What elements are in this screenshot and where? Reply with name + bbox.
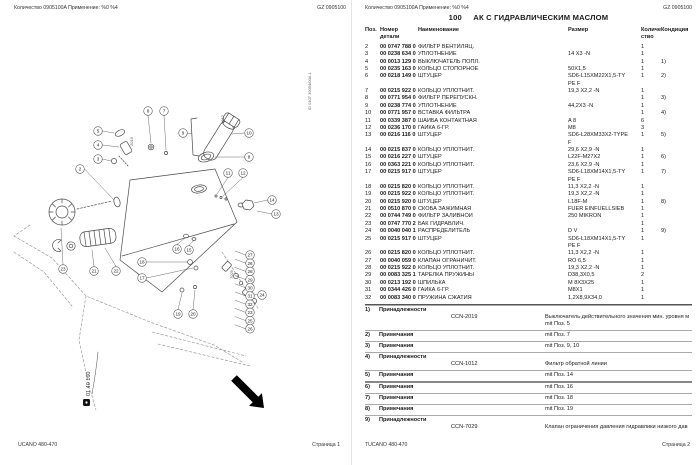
cell-size [568,110,641,117]
table-row: 1200 0236 170 0ГАЙКА 6-ГР.M83 [365,125,692,132]
cell-cond [661,88,692,95]
cell-part: 00 0339 387 0 [380,118,418,125]
callout-number: 29 [247,277,253,282]
callout-number: 15 [186,248,192,253]
cell-size: 11,3 X2,2 -N [568,250,641,257]
cell-name: КОЛЬЦО УПЛОТНИТ. [418,250,568,257]
footnote-dsc: Клапан ограничения давления гидравлики н… [545,424,691,431]
right-header-quantity: Количество 0905100A Применение: %0 %4 [365,5,469,11]
cell-part: 00 0215 837 0 [380,147,418,154]
cell-pos: 32 [365,295,380,302]
table-row: 400 0013 129 0ВЫКЛЮЧАТЕЛЬ ПОПЛ.11) [365,59,692,66]
cell-cond [661,265,692,272]
cell-size: L18F-M [568,199,641,206]
cell-part: 00 0747 788 0 [380,44,418,51]
callout-number: 2 [79,167,82,172]
cell-qty: 1 [641,169,661,184]
cell-cond [661,272,692,279]
callout-number: 23 [60,267,66,272]
footnote-ccn: CCN-1012 [451,361,477,368]
footnote-lab: Примечания [379,372,413,379]
callout-number: 10 [246,131,252,136]
table-row: 200 0747 788 0ФИЛЬТР ВЕНТИЛЯЦ.1 [365,44,692,51]
cell-name: КЛАПАН ОГРАНИЧИТ. [418,258,568,265]
cell-cond: 5) [661,132,692,147]
callout-number: 8 [248,155,251,160]
cell-pos: 3 [365,51,380,58]
cell-part: 00 0747 770 2 [380,221,418,228]
strip-leader-line [235,325,246,329]
cell-pos: 26 [365,250,380,257]
callout-number: 24 [259,293,265,298]
cell-part: 00 0236 170 0 [380,125,418,132]
cell-cond [661,147,692,154]
cell-part: 00 0215 922 0 [380,191,418,198]
footnote-dsc: mit Поз. 16 [545,384,691,391]
cell-qty: 1 [641,206,661,213]
cell-size: SD6-L28XM33X2-TYPE F [568,132,641,147]
footnote-num: 5) [365,372,370,379]
cell-pos: 23 [365,221,380,228]
callout-number: 21 [91,269,97,274]
table-row: 600 0218 149 0ШТУЦЕРSD6-L15XM22X1,5-TY P… [365,73,692,88]
group-ref-label: 01 40 160 [83,352,98,406]
table-row: 2900 0083 325 1ТАРЕЛКА ПРУЖИНЫD38,3X0,52 [365,272,692,279]
table-row: 2100 0510 870 0СКОБА ЗАЖИМНАЯFUER EINFUE… [365,206,692,213]
cell-cond: 7) [661,169,692,184]
plug-parts [148,144,167,154]
cell-pos: 16 [365,162,380,169]
cell-pos: 29 [365,272,380,279]
cell-name: УПЛОТНЕНИЕ [418,103,568,110]
cell-size: L22F-M27X2 [568,154,641,161]
cell-qty: 1 [641,110,661,117]
footnote-lab: Принадлежности [379,307,426,314]
cell-size: 1,2X8,9X34,0 [568,295,641,302]
cell-qty: 3 [641,125,661,132]
cell-cond [661,191,692,198]
cell-qty: 1 [641,44,661,51]
exploded-parts-diagram: 01 40 160 ID 0107 39054/00A 1 2543679108… [0,0,350,465]
footnote-num: 9) [365,417,370,424]
cell-cond: 3) [661,95,692,102]
cell-name: КОЛЬЦО УПЛОТНИТ. [418,147,568,154]
cell-part: 00 0083 340 0 [380,295,418,302]
callout-number: 5 [97,129,100,134]
table-row: 2300 0747 770 2БАК ГИДРАВЛИЧ.1 [365,221,692,228]
cell-pos: 6 [365,73,380,88]
cell-size: 11,3 X2,2 -N [568,184,641,191]
cell-pos: 4 [365,59,380,66]
callout-number: 32 [247,302,253,307]
table-row: 800 0771 954 0ФИЛЬТР ПЕРЕПУСКН.13) [365,95,692,102]
cell-part: 00 0215 917 0 [380,169,418,184]
cell-pos: 22 [365,213,380,220]
footnote-lab: Примечания [379,332,413,339]
footnote: 4)ПринадлежностиCCN-1012Фильтр обратной … [365,352,692,370]
cell-name: ШТУЦЕР [418,154,568,161]
footnote-lab: Примечания [379,384,413,391]
footnote-dsc: mit Поз. 9, 10 [545,343,691,350]
cell-cond [661,250,692,257]
cell-name: ФИЛЬТР ВЕНТИЛЯЦ. [418,44,568,51]
cell-name: ШТУЦЕР [418,169,568,184]
cell-name: ВСТАВКА ФИЛЬТРА [418,110,568,117]
cell-qty: 1 [641,73,661,88]
cell-cond [661,280,692,287]
cell-name: ГАЙКА 6-ГР. [418,125,568,132]
table-row: 700 0215 922 0КОЛЬЦО УПЛОТНИТ.19,3 X2,2 … [365,88,692,95]
callout-number: 7 [163,109,166,114]
cell-cond [661,44,692,51]
cell-part: 00 0215 820 0 [380,184,418,191]
cell-part: 00 0013 129 0 [380,59,418,66]
catalog-spread: Количество 0905100A Применение: %0 %4 GZ… [0,0,700,465]
footnote-ccn: CCN-2019 [451,314,477,321]
table-row: 2800 0215 922 0КОЛЬЦО УПЛОТНИТ.19,3 X2,2… [365,265,692,272]
callout-number: 31 [247,294,253,299]
cell-cond: 1) [661,59,692,66]
cell-qty: 1 [641,66,661,73]
parts-table-body: 200 0747 788 0ФИЛЬТР ВЕНТИЛЯЦ.1300 0238 … [365,44,692,302]
cell-part: 00 0363 221 0 [380,162,418,169]
cell-size: 250 MIKRON [568,213,641,220]
footnote-lab: Примечания [379,343,413,350]
table-row: 1300 0216 116 0ШТУЦЕРSD6-L28XM33X2-TYPE … [365,132,692,147]
callout-number: 13 [273,212,279,217]
footnote-num: 8) [365,406,370,413]
footnote-lab: Принадлежности [379,354,426,361]
drawing-id: ID 0107 39054/00A 1 [307,72,312,110]
cell-qty: 1 [641,228,661,235]
cell-size: D38,3X0,5 [568,272,641,279]
cell-cond [661,206,692,213]
table-row: 1600 0363 221 0КОЛЬЦО УПЛОТНИТ.23,6 X2,9… [365,162,692,169]
cell-name: РАСПРЕДЕЛИТЕЛЬ [418,228,568,235]
col-header-qty: Количе ство [641,27,661,44]
cell-pos: 21 [365,206,380,213]
cell-part: 00 0238 634 0 [380,51,418,58]
inline-ref-label: 2019 [129,136,134,146]
cell-name: ШТУЦЕР [418,73,568,88]
cell-part: 00 0771 957 0 [380,110,418,117]
table-row: 2600 0215 820 0КОЛЬЦО УПЛОТНИТ.11,3 X2,2… [365,250,692,257]
cell-part: 00 0216 116 0 [380,132,418,147]
cell-qty: 1 [641,250,661,257]
cell-name: ВЫКЛЮЧАТЕЛЬ ПОПЛ. [418,59,568,66]
footnote-dsc: mit Поз. 19 [545,406,691,413]
cell-name: ФИЛЬТР ПЕРЕПУСКН. [418,95,568,102]
cell-pos: 31 [365,287,380,294]
footnote-num: 7) [365,395,370,402]
section-title: 100 АК С ГИДРАВЛИЧЕСКИМ МАСЛОМ [365,13,692,22]
strip-leader-line [235,300,246,304]
cell-pos: 30 [365,280,380,287]
cell-cond [661,258,692,265]
cell-pos: 7 [365,88,380,95]
cell-cond [661,125,692,132]
cell-size: 23,6 X2,9 -N [568,162,641,169]
cell-part: 00 0215 922 0 [380,88,418,95]
callout-number: 11 [226,171,231,176]
cell-pos: 11 [365,118,380,125]
cell-qty: 1 [641,236,661,251]
cell-size: M8X1 [568,287,641,294]
cell-pos: 14 [365,147,380,154]
callout-number: 22 [113,269,119,274]
callout-number: 27 [247,253,253,258]
callout-number: 12 [240,171,246,176]
cell-part: 00 0215 922 0 [380,265,418,272]
page-seam [351,0,352,465]
cell-pos: 12 [365,125,380,132]
cell-qty: 1 [641,59,661,66]
cell-qty: 1 [641,265,661,272]
cell-qty: 1 [641,162,661,169]
right-footer-page: Страница 2 [662,442,690,448]
cell-pos: 24 [365,228,380,235]
breather-filter-cylinder [197,112,241,164]
table-row: 2700 0040 059 0КЛАПАН ОГРАНИЧИТ.RO 6,51 [365,258,692,265]
table-row: 1800 0215 820 0КОЛЬЦО УПЛОТНИТ.11,3 X2,2… [365,184,692,191]
cell-cond [661,221,692,228]
parts-table-wrap: Поз. Номер детали Наименование Размер Ко… [365,27,692,433]
cell-part: 00 0215 920 0 [380,199,418,206]
cell-cond [661,184,692,191]
cell-size: SD6-L18XM14X1,5-TY PE F [568,236,641,251]
table-row: 1000 0771 957 0ВСТАВКА ФИЛЬТРА14) [365,110,692,117]
strip-leader-line [235,251,246,255]
footnote-dsc: Выключатель действительного значения мин… [545,314,691,321]
cell-pos: 25 [365,236,380,251]
cell-name: ШАЙБА КОНТАКТНАЯ [418,118,568,125]
section-number: 100 [449,13,462,22]
footnote-num: 2) [365,332,370,339]
footnote-num: 1) [365,307,370,314]
cell-part: 00 0344 426 0 [380,287,418,294]
footnote: 9)ПринадлежностиCCN-7029Клапан ограничен… [365,415,692,433]
inline-ref-label: 1012 [220,114,225,124]
table-row: 3000 0213 192 0ШПИЛЬКАM 8X3X251 [365,280,692,287]
cell-pos: 8 [365,95,380,102]
cell-qty: 1 [641,88,661,95]
vent-cap-knob [49,199,112,225]
table-row: 900 0238 774 0УПЛОТНЕНИЕ44,2X3 -N1 [365,103,692,110]
cell-size: SD6-L15XM22X1,5-TY PE F [568,73,641,88]
footnote-dsc: mit Поз. 7 [545,332,691,339]
callout-number: 26 [247,261,253,266]
cell-part: 00 0744 749 0 [380,213,418,220]
footnote-num: 4) [365,354,370,361]
table-row: 2400 0040 040 1РАСПРЕДЕЛИТЕЛЬD V19) [365,228,692,235]
table-row: 3200 0083 340 0ПРУЖИНА СЖАТИЯ1,2X8,9X34,… [365,295,692,302]
cell-size: A 8 [568,118,641,125]
cell-size: FUER EINFUELLSIEB [568,206,641,213]
cell-size: SD6-L18XM14X1,5-TY PE F [568,169,641,184]
cell-name: КОЛЬЦО СТОПОРНОЕ [418,66,568,73]
cell-qty: 6 [641,118,661,125]
cell-cond [661,51,692,58]
bracket-9 [191,118,199,156]
cell-size: RO 6,5 [568,258,641,265]
table-row: 2200 0744 749 0ФИЛЬТР ЗАЛИВНОЙ250 MIKRON… [365,213,692,220]
footnote-lab: Принадлежности [379,417,426,424]
table-row: 1500 0216 227 0ШТУЦЕРL22F-M27X216) [365,154,692,161]
table-row: 2000 0215 920 0ШТУЦЕРL18F-M18) [365,199,692,206]
callout-number: 20 [190,312,196,317]
footnote: 2)Примечанияmit Поз. 7 [365,330,692,341]
cell-pos: 2 [365,44,380,51]
col-header-pos: Поз. [365,27,380,44]
strip-leader-line [235,259,246,263]
footnote: 8)Примечанияmit Поз. 19 [365,404,692,415]
cell-pos: 19 [365,191,380,198]
right-header-code: GZ 0905100 [663,5,692,11]
callout-number: 3 [97,157,100,162]
callout-number: 23 [247,310,253,315]
strip-leader-line [235,276,246,280]
footnote: 7)Примечанияmit Поз. 18 [365,393,692,404]
cell-name: ФИЛЬТР ЗАЛИВНОЙ [418,213,568,220]
cell-size: M 8X3X25 [568,280,641,287]
cell-name: КОЛЬЦО УПЛОТНИТ. [418,88,568,95]
footnote-dsc: Фильтр обратной линии [545,361,691,368]
table-row: 1100 0339 387 0ШАЙБА КОНТАКТНАЯA 86 [365,118,692,125]
footnote: 5)Примечанияmit Поз. 14 [365,370,692,381]
cell-qty: 1 [641,103,661,110]
strip-leader-line [235,267,246,271]
cell-name: УПЛОТНЕНИЕ [418,51,568,58]
cell-part: 00 0216 227 0 [380,154,418,161]
cell-pos: 17 [365,169,380,184]
cell-size: 29,6 X2,9 -N [568,147,641,154]
callout-number: 30 [247,286,253,291]
cell-qty: 1 [641,51,661,58]
cell-cond [661,213,692,220]
cell-name: КОЛЬЦО УПЛОТНИТ. [418,191,568,198]
cell-qty: 1 [641,213,661,220]
cell-cond: 2) [661,73,692,88]
tank-body [113,169,237,292]
cell-name: ШТУЦЕР [418,236,568,251]
cell-qty: 1 [641,287,661,294]
cell-size [568,59,641,66]
svg-text:01 40 160: 01 40 160 [86,372,92,396]
cell-cond: 4) [661,110,692,117]
cell-part: 00 0771 954 0 [380,95,418,102]
callout-number: 19 [175,312,181,317]
table-row: 1700 0215 917 0ШТУЦЕРSD6-L18XM14X1,5-TY … [365,169,692,184]
cell-part: 00 0213 192 0 [380,280,418,287]
cell-pos: 9 [365,103,380,110]
cell-size: 19,3 X2,2 -N [568,88,641,95]
table-row: 2500 0215 917 0ШТУЦЕРSD6-L18XM14X1,5-TY … [365,236,692,251]
cell-size [568,221,641,228]
cell-cond [661,295,692,302]
cell-name: ШТУЦЕР [418,199,568,206]
table-row: 3100 0344 426 0ГАЙКА 6-ГР.M8X11 [365,287,692,294]
footnote-ccn: CCN-7029 [451,424,477,431]
callout-number: 25 [247,318,253,323]
col-header-size: Размер [568,27,641,44]
strip-leader-line [235,308,246,312]
cell-size [568,44,641,51]
table-row: 300 0238 634 0УПЛОТНЕНИЕ14 X3 -N1 [365,51,692,58]
cell-pos: 15 [365,154,380,161]
cell-part: 00 0040 040 1 [380,228,418,235]
cell-cond: 9) [661,228,692,235]
cell-qty: 1 [641,295,661,302]
footnote: 3)Примечанияmit Поз. 9, 10 [365,341,692,352]
cell-qty: 1 [641,184,661,191]
cell-cond [661,103,692,110]
cell-name: БАК ГИДРАВЛИЧ. [418,221,568,228]
cell-pos: 13 [365,132,380,147]
footnote: 6)Примечанияmit Поз. 16 [365,381,692,393]
cell-name: ШПИЛЬКА [418,280,568,287]
callout-number: 17 [139,276,145,281]
cell-name: КОЛЬЦО УПЛОТНИТ. [418,162,568,169]
footnote-dsc: mit Поз. 18 [545,395,691,402]
strip-leader-line [235,317,246,321]
footnote-dsc: mit Поз. 5 [545,321,691,328]
cell-name: КОЛЬЦО УПЛОТНИТ. [418,265,568,272]
cell-cond: 6) [661,154,692,161]
col-header-part: Номер детали [380,27,418,44]
inline-ref-label: 7029 [229,269,234,279]
cell-cond [661,162,692,169]
cell-qty: 1 [641,221,661,228]
cell-pos: 28 [365,265,380,272]
cell-part: 00 0238 774 0 [380,103,418,110]
callout-number: 26 [247,327,253,332]
cell-qty: 1 [641,191,661,198]
cell-size [568,95,641,102]
cell-size: M8 [568,125,641,132]
callout-number: 16 [174,247,180,252]
callout-number: 9 [182,131,185,136]
footnote-num: 6) [365,384,370,391]
cell-qty: 1 [641,95,661,102]
callout-number: 14 [269,198,275,203]
parts-table-header-row: Поз. Номер детали Наименование Размер Ко… [365,27,692,44]
cell-size: 50X1,5 [568,66,641,73]
cell-name: КОЛЬЦО УПЛОТНИТ. [418,184,568,191]
col-header-cond: Кондиция [661,27,692,44]
cell-pos: 20 [365,199,380,206]
cell-pos: 27 [365,258,380,265]
cell-part: 00 0040 059 0 [380,258,418,265]
cell-name: СКОБА ЗАЖИМНАЯ [418,206,568,213]
cell-size: 44,2X3 -N [568,103,641,110]
col-header-name: Наименование [418,27,568,44]
cell-part: 00 0083 325 1 [380,272,418,279]
cell-qty: 1 [641,132,661,147]
table-row: 1900 0215 922 0КОЛЬЦО УПЛОТНИТ.19,3 X2,2… [365,191,692,198]
direction-arrow [231,375,264,408]
cell-qty: 1 [641,154,661,161]
cell-pos: 5 [365,66,380,73]
cell-cond [661,236,692,251]
cell-part: 00 0218 149 0 [380,73,418,88]
footnote-lab: Примечания [379,395,413,402]
cell-qty: 1 [641,280,661,287]
cell-part: 00 0235 163 0 [380,66,418,73]
cell-size: 14 X3 -N [568,51,641,58]
cell-cond: 8) [661,199,692,206]
cell-cond [661,287,692,294]
right-footer-model: TUCANO 480-470 [365,442,407,448]
